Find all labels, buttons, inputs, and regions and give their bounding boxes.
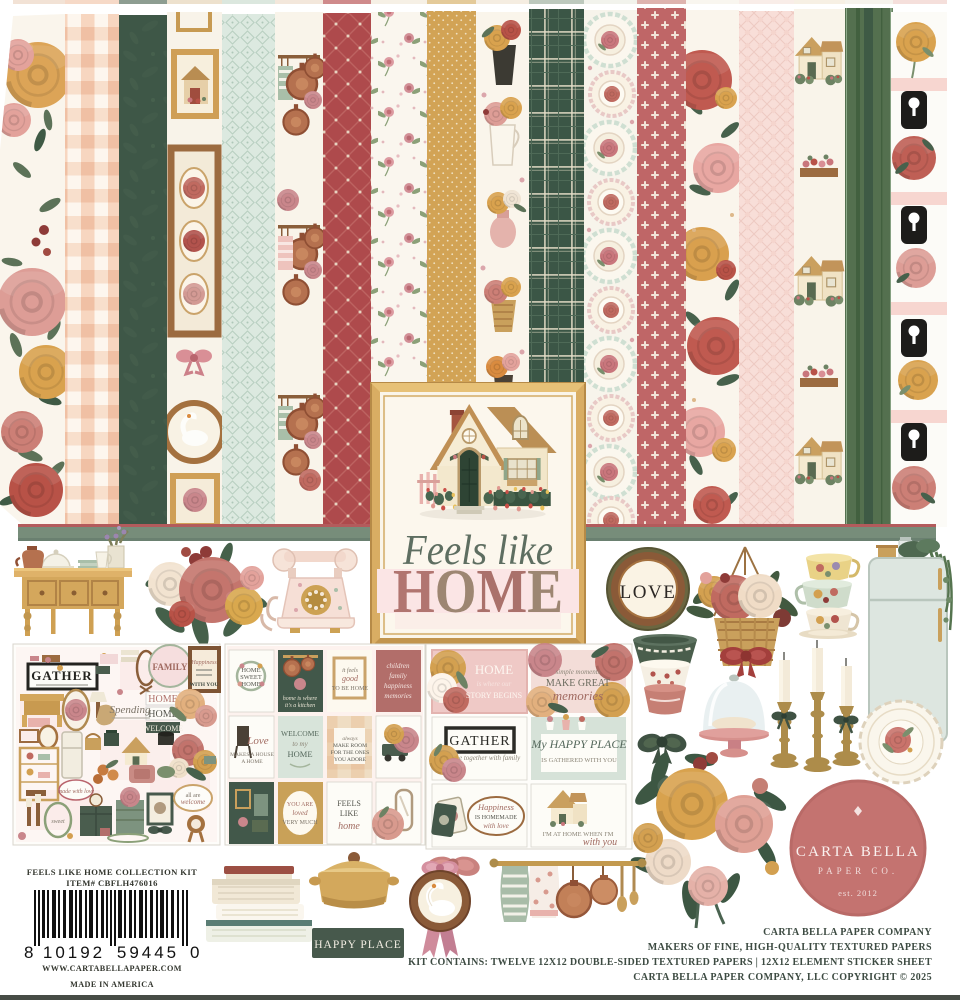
svg-text:IS HOMEMADE: IS HOMEMADE <box>475 815 518 821</box>
svg-text:CARTA BELLA: CARTA BELLA <box>796 844 920 860</box>
svg-text:10192: 10192 <box>43 943 105 962</box>
svg-text:FAMILY: FAMILY <box>152 662 188 672</box>
svg-text:HOME: HOME <box>475 662 513 677</box>
svg-text:HAPPY PLACE: HAPPY PLACE <box>314 939 402 951</box>
svg-text:est. 2012: est. 2012 <box>838 888 878 898</box>
svg-text:Love: Love <box>246 735 269 747</box>
svg-text:WITH YOU: WITH YOU <box>190 682 219 688</box>
svg-text:HOME: HOME <box>393 558 563 626</box>
svg-text:VERY MUCH: VERY MUCH <box>282 820 318 826</box>
svg-text:MAKE ROOM: MAKE ROOM <box>333 743 367 749</box>
svg-text:59445: 59445 <box>117 943 179 962</box>
svg-text:with love: with love <box>483 822 508 830</box>
svg-text:with you: with you <box>583 837 617 848</box>
svg-text:8: 8 <box>24 943 33 962</box>
svg-text:made with love: made with love <box>58 789 95 795</box>
svg-text:happiness: happiness <box>384 682 412 690</box>
svg-text:Happiness: Happiness <box>477 802 515 812</box>
svg-text:home is where: home is where <box>283 696 318 702</box>
svg-text:family: family <box>389 672 407 680</box>
svg-text:IS GATHERED WITH YOU: IS GATHERED WITH YOU <box>541 757 617 764</box>
svg-text:simple moments: simple moments <box>556 668 601 676</box>
svg-text:is where our: is where our <box>477 680 512 688</box>
svg-text:Spending: Spending <box>110 704 151 716</box>
svg-text:PAPER CO.: PAPER CO. <box>818 866 898 876</box>
svg-text:good: good <box>342 674 359 683</box>
svg-text:to my: to my <box>292 740 308 748</box>
svg-text:memories: memories <box>553 688 604 703</box>
svg-text:welcome: welcome <box>181 798 206 806</box>
svg-text:HOME: HOME <box>287 749 312 759</box>
svg-text:sweet: sweet <box>51 819 65 825</box>
svg-text:memories: memories <box>384 692 411 700</box>
svg-text:GATHER: GATHER <box>449 734 510 749</box>
svg-text:children: children <box>386 662 410 670</box>
svg-text:loved: loved <box>292 809 308 817</box>
svg-text:STORY BEGINS: STORY BEGINS <box>466 691 522 700</box>
svg-text:YOU ADORE: YOU ADORE <box>334 757 367 763</box>
svg-text:it feels: it feels <box>342 667 358 674</box>
svg-text:WELCOME: WELCOME <box>143 724 184 733</box>
svg-text:HOME: HOME <box>241 681 260 688</box>
svg-text:LOVE: LOVE <box>620 582 677 603</box>
svg-text:HOME: HOME <box>148 694 177 705</box>
svg-text:FEELS: FEELS <box>337 799 361 808</box>
svg-text:A HOME: A HOME <box>241 759 263 765</box>
svg-text:always: always <box>342 736 357 742</box>
svg-text:SWEET: SWEET <box>240 674 262 681</box>
svg-text:LIKE: LIKE <box>340 809 358 818</box>
svg-text:GATHER: GATHER <box>31 668 92 683</box>
svg-text:My HAPPY PLACE: My HAPPY PLACE <box>530 737 627 751</box>
svg-text:it's a kitchen: it's a kitchen <box>285 703 315 709</box>
svg-text:HOME: HOME <box>241 667 260 674</box>
svg-text:FOR THE ONES: FOR THE ONES <box>331 750 369 756</box>
svg-text:Happiness: Happiness <box>190 660 217 666</box>
svg-text:TO BE HOME: TO BE HOME <box>332 686 369 692</box>
svg-text:WELCOME: WELCOME <box>281 729 319 738</box>
svg-text:MAKES A HOUSE: MAKES A HOUSE <box>230 752 274 758</box>
svg-text:0: 0 <box>190 943 199 962</box>
svg-text:YOU ARE: YOU ARE <box>287 802 314 808</box>
svg-text:home: home <box>338 821 360 832</box>
